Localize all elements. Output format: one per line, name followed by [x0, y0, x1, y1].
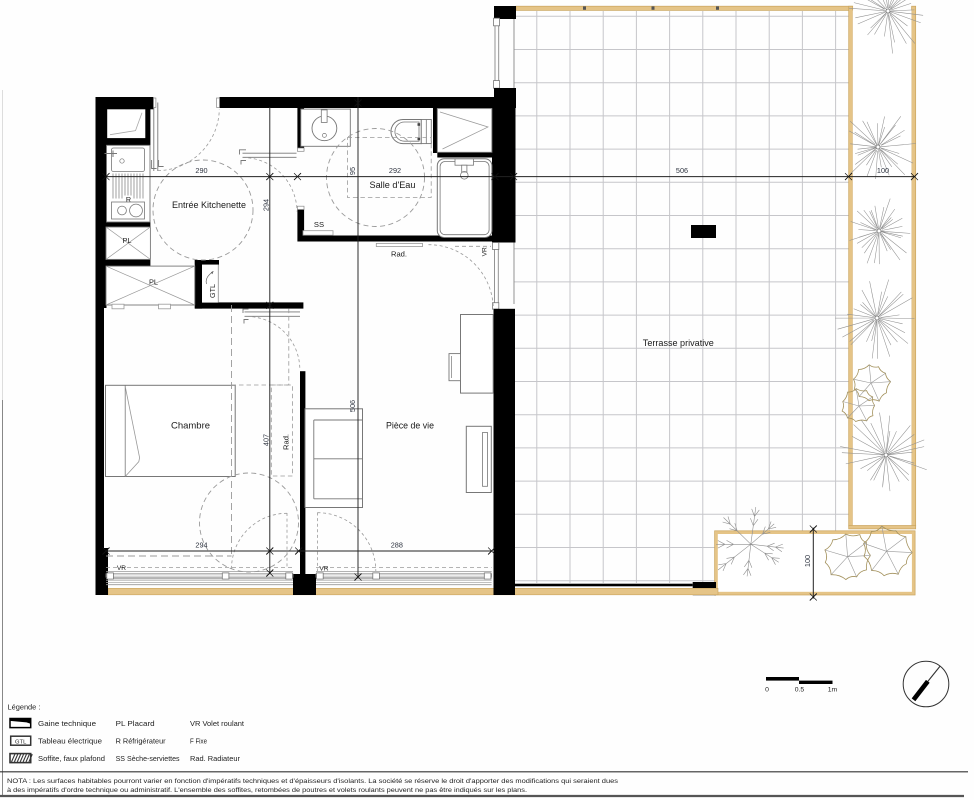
svg-text:VR: VR [319, 566, 328, 573]
svg-text:GTL: GTL [15, 739, 27, 745]
svg-text:à des impératifs d'ordre techn: à des impératifs d'ordre technique ou ad… [7, 787, 527, 794]
svg-text:PL: PL [122, 236, 131, 245]
svg-text:95: 95 [348, 167, 357, 175]
svg-text:292: 292 [389, 166, 401, 175]
svg-text:1m: 1m [828, 687, 838, 694]
svg-text:Chambre: Chambre [171, 420, 210, 430]
svg-text:VR: VR [482, 247, 489, 256]
svg-text:407: 407 [261, 434, 270, 446]
svg-text:Tableau électrique: Tableau électrique [38, 737, 102, 746]
svg-text:PL Placard: PL Placard [116, 719, 155, 728]
svg-text:Soffite, faux plafond: Soffite, faux plafond [38, 754, 105, 763]
svg-text:Terrasse privative: Terrasse privative [643, 338, 714, 348]
svg-text:506: 506 [676, 166, 688, 175]
svg-text:SS: SS [314, 220, 324, 229]
svg-text:F Fixe: F Fixe [190, 737, 207, 746]
svg-text:Rad.: Rad. [391, 250, 407, 259]
svg-text:Entrée Kitchenette: Entrée Kitchenette [172, 200, 246, 210]
svg-text:294: 294 [195, 541, 207, 550]
svg-text:Rad.: Rad. [282, 434, 291, 450]
svg-text:100: 100 [803, 555, 812, 567]
svg-text:GTL: GTL [208, 284, 217, 298]
svg-text:SS Sèche-serviettes: SS Sèche-serviettes [116, 754, 180, 763]
svg-text:VR: VR [117, 565, 126, 572]
svg-text:Salle d'Eau: Salle d'Eau [370, 180, 416, 190]
svg-text:Gaine technique: Gaine technique [38, 719, 96, 728]
svg-text:Légende :: Légende : [8, 703, 41, 712]
svg-text:0.5: 0.5 [795, 687, 805, 694]
svg-text:506: 506 [348, 400, 357, 412]
svg-text:294: 294 [261, 199, 270, 211]
svg-text:R Réfrigérateur: R Réfrigérateur [116, 737, 167, 746]
svg-text:100: 100 [877, 166, 889, 175]
svg-text:290: 290 [195, 166, 207, 175]
svg-text:Pièce de vie: Pièce de vie [386, 420, 434, 430]
svg-text:NOTA : Les surfaces habitables: NOTA : Les surfaces habitables pourront … [7, 778, 619, 785]
svg-text:PL: PL [149, 278, 158, 287]
svg-text:Rad. Radiateur: Rad. Radiateur [190, 754, 241, 763]
svg-text:VR Volet roulant: VR Volet roulant [190, 719, 244, 728]
svg-text:288: 288 [391, 541, 403, 550]
svg-text:0: 0 [765, 687, 769, 694]
